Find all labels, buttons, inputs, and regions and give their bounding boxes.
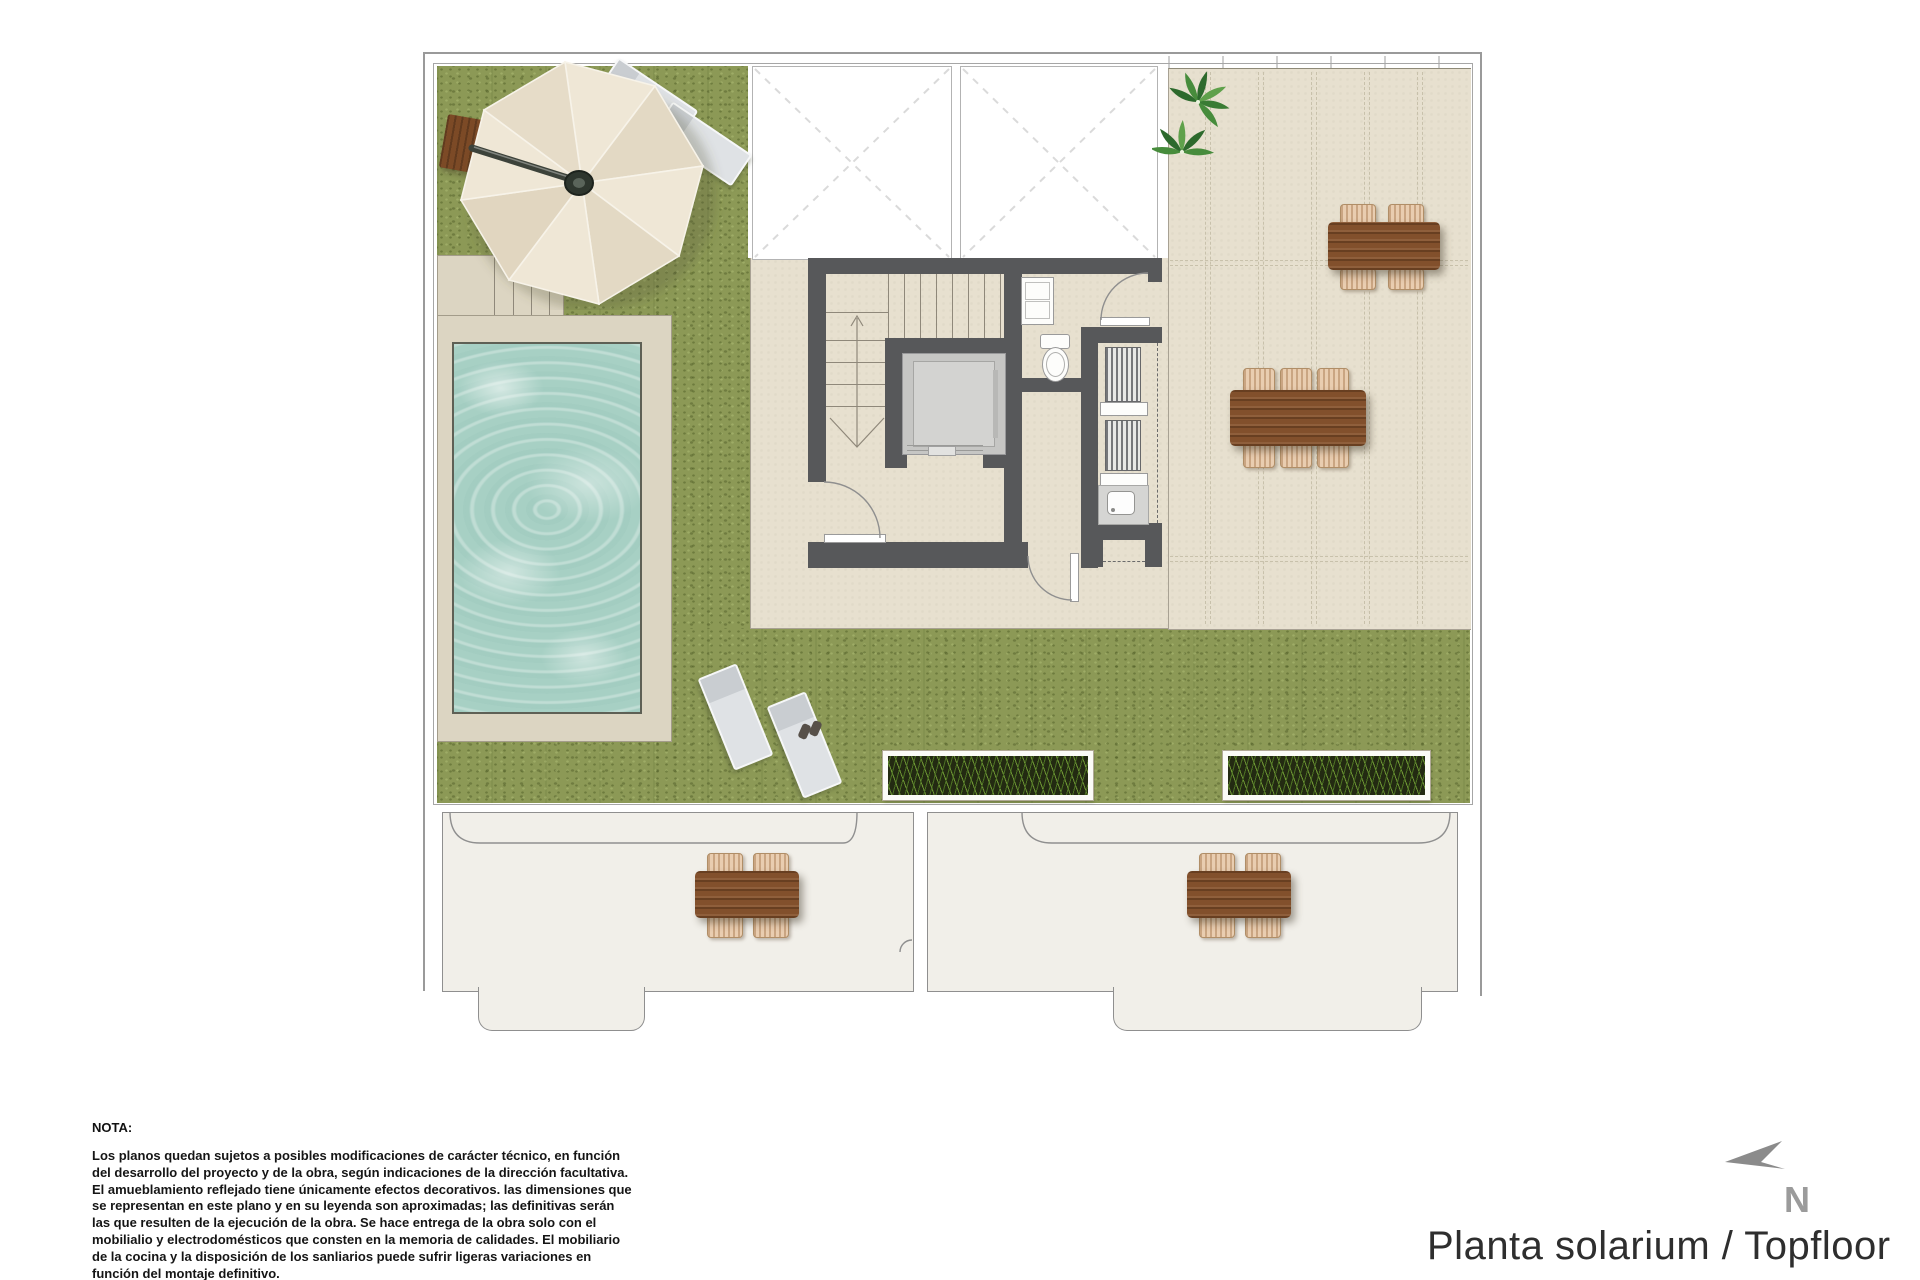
stair-tread	[952, 274, 953, 338]
top-wall-ticks	[1168, 56, 1478, 68]
boiler-cabinet	[1021, 277, 1054, 325]
faucet-dot	[1111, 508, 1115, 512]
elevator-cab-floor	[913, 361, 995, 447]
note-heading: NOTA:	[92, 1120, 132, 1135]
laundry-shelf	[1100, 402, 1148, 416]
dining-table	[1328, 222, 1440, 270]
door-leaf	[1070, 553, 1079, 602]
stair-tread	[936, 274, 937, 338]
boundary-left	[423, 52, 425, 991]
boundary-right-outer	[1480, 52, 1482, 996]
door-leaf	[1100, 317, 1150, 326]
stair-tread	[920, 274, 921, 338]
stair-tread	[826, 340, 885, 341]
stair-landing-line	[826, 312, 888, 313]
elevator-wall-top	[885, 338, 1004, 353]
laundry-open-side-dashed	[1157, 343, 1158, 523]
ac-unit	[1105, 420, 1141, 471]
laundry-stub-left	[1086, 540, 1103, 567]
cabinet-detail	[1025, 301, 1050, 319]
planter-grass	[888, 756, 1088, 795]
core-wall-top-corner	[1148, 258, 1162, 282]
dining-table	[695, 871, 799, 918]
laundry-bottom-dashed	[1103, 561, 1145, 562]
lower-terrace-left	[442, 812, 914, 992]
dining-table	[1187, 871, 1291, 918]
chair	[1340, 268, 1376, 290]
elevator-cab	[902, 353, 1006, 455]
cabinet-detail	[1025, 282, 1050, 300]
toilet-bowl	[1042, 347, 1069, 382]
tile-grid-line	[1311, 72, 1317, 624]
north-arrow: N	[1700, 1128, 1830, 1223]
laundry-wall-bottom	[1098, 523, 1162, 540]
step-line	[494, 256, 495, 316]
stair-tread	[968, 274, 969, 338]
terrace-right	[1168, 68, 1471, 630]
tile-grid-line	[1205, 72, 1211, 624]
stair-tread	[904, 274, 905, 338]
elevator-wall-left	[885, 353, 902, 468]
tile-grid-line	[1364, 72, 1370, 624]
planter-box	[883, 751, 1093, 800]
elevator-wall-stub-left	[885, 453, 907, 468]
step-line	[549, 256, 550, 316]
note-body: Los planos quedan sujetos a posibles mod…	[92, 1148, 632, 1280]
tile-grid-line	[1417, 72, 1423, 624]
boundary-top	[423, 52, 1482, 54]
skylight-void-right	[960, 66, 1158, 260]
stair-tread	[826, 406, 885, 407]
elevator-door-rail	[993, 370, 998, 438]
tile-grid-line	[1170, 556, 1468, 562]
elevator-wall-stub-right	[983, 453, 1004, 468]
chair	[1388, 268, 1424, 290]
swimming-pool	[452, 342, 642, 714]
door-leaf	[824, 534, 886, 543]
laundry-stub-right	[1145, 540, 1162, 567]
plan-title: Planta solarium / Topfloor	[1427, 1224, 1891, 1269]
core-wall-bottom	[808, 542, 1028, 568]
core-wall-stair-right	[1004, 274, 1022, 568]
core-wall-left	[808, 274, 826, 482]
pool-steps	[437, 255, 564, 317]
north-label: N	[1784, 1179, 1810, 1220]
ac-unit	[1105, 347, 1141, 402]
planter-grass	[1228, 756, 1425, 795]
laundry-wall-top	[1098, 327, 1162, 343]
core-wall-mid-vertical	[1081, 327, 1098, 568]
tile-grid-line	[1258, 72, 1264, 624]
skylight-void-left	[752, 66, 952, 260]
stair-tread	[826, 384, 885, 385]
umbrella-side-table	[439, 114, 500, 176]
lower-terrace-right-bay	[1113, 987, 1422, 1031]
stair-tread	[1000, 274, 1001, 338]
elevator-sill-box	[928, 446, 956, 456]
void-x-icon	[753, 67, 951, 259]
stair-tread	[826, 362, 885, 363]
lower-terrace-left-bay	[478, 987, 645, 1031]
dining-table	[1230, 390, 1366, 446]
void-x-icon	[961, 67, 1157, 259]
stair-tread	[888, 274, 889, 338]
step-line	[531, 256, 532, 316]
north-arrow-icon	[1725, 1141, 1785, 1169]
toilet-seat	[1046, 352, 1065, 377]
planter-box	[1223, 751, 1430, 800]
core-wall-top	[808, 258, 1148, 274]
step-line	[513, 256, 514, 316]
floorplan-sheet: NOTA: Los planos quedan sujetos a posibl…	[0, 0, 1920, 1280]
stair-tread	[984, 274, 985, 338]
laundry-counter	[1098, 485, 1149, 525]
